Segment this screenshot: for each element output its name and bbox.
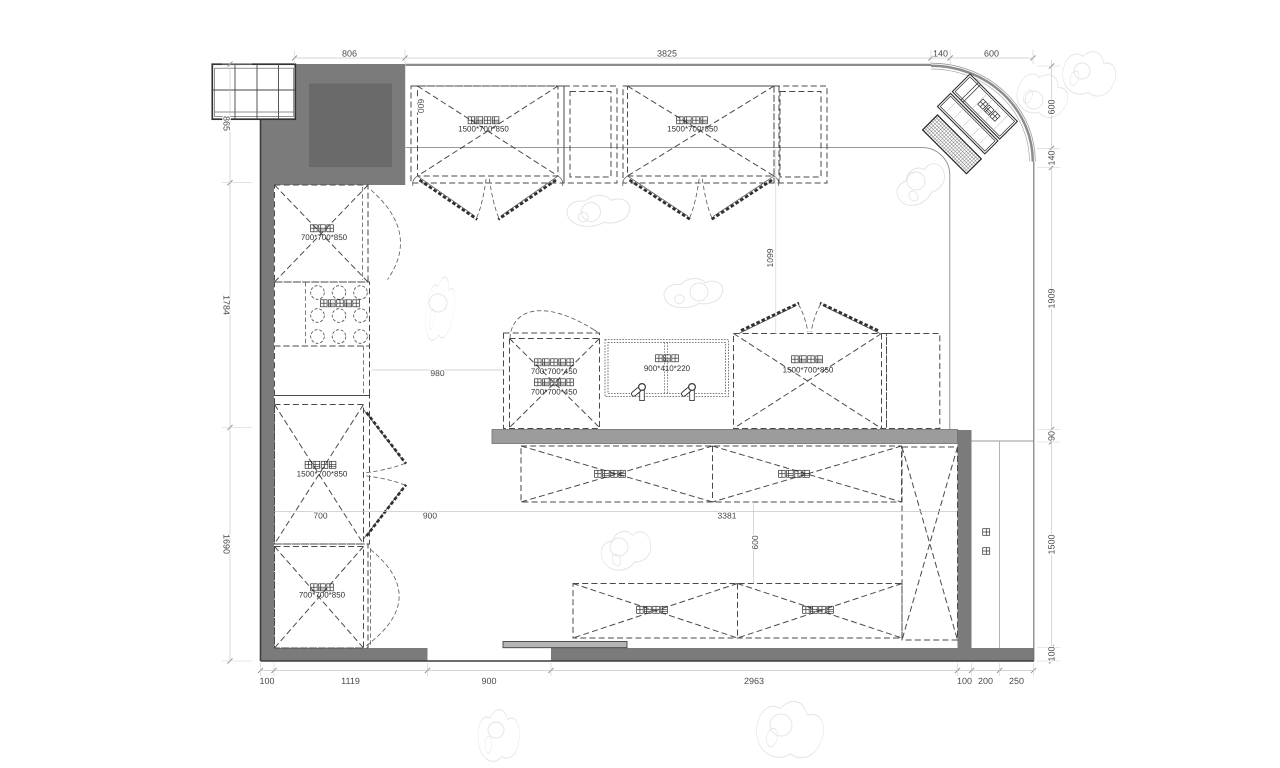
svg-text:140: 140	[933, 48, 948, 58]
svg-text:250: 250	[1009, 676, 1024, 686]
svg-text:600: 600	[984, 48, 999, 58]
svg-text:700*700*450: 700*700*450	[531, 367, 578, 376]
svg-text:1784: 1784	[222, 295, 232, 315]
svg-text:700*700*850: 700*700*850	[299, 591, 346, 600]
svg-text:1500*700*850: 1500*700*850	[297, 470, 348, 479]
svg-text:3825: 3825	[657, 48, 677, 58]
svg-text:1099: 1099	[765, 248, 775, 267]
svg-text:3381: 3381	[718, 511, 737, 521]
svg-text:1119: 1119	[341, 676, 360, 686]
svg-text:1500*700*850: 1500*700*850	[783, 366, 834, 375]
svg-text:1690: 1690	[222, 534, 232, 554]
svg-text:2963: 2963	[744, 676, 764, 686]
svg-text:100: 100	[1047, 646, 1057, 661]
svg-text:1500*700*850: 1500*700*850	[667, 125, 718, 134]
svg-text:100: 100	[259, 676, 274, 686]
svg-text:600: 600	[750, 535, 760, 549]
svg-text:90: 90	[1047, 431, 1057, 441]
svg-text:1500: 1500	[1047, 534, 1057, 554]
svg-text:140: 140	[1047, 150, 1057, 165]
svg-text:100: 100	[957, 676, 972, 686]
svg-text:200: 200	[978, 676, 993, 686]
svg-text:600: 600	[1047, 99, 1057, 114]
svg-text:700*700*850: 700*700*850	[301, 233, 348, 242]
svg-text:600: 600	[416, 99, 426, 113]
svg-text:700: 700	[313, 511, 327, 521]
svg-text:1500*700*850: 1500*700*850	[458, 125, 509, 134]
svg-text:980: 980	[430, 368, 444, 378]
svg-text:806: 806	[342, 48, 357, 58]
svg-text:865: 865	[222, 116, 232, 131]
svg-text:1909: 1909	[1047, 288, 1057, 308]
svg-text:900: 900	[423, 511, 437, 521]
svg-text:900: 900	[481, 676, 496, 686]
svg-text:900*410*220: 900*410*220	[644, 364, 691, 373]
svg-text:700*700*450: 700*700*450	[531, 388, 578, 397]
